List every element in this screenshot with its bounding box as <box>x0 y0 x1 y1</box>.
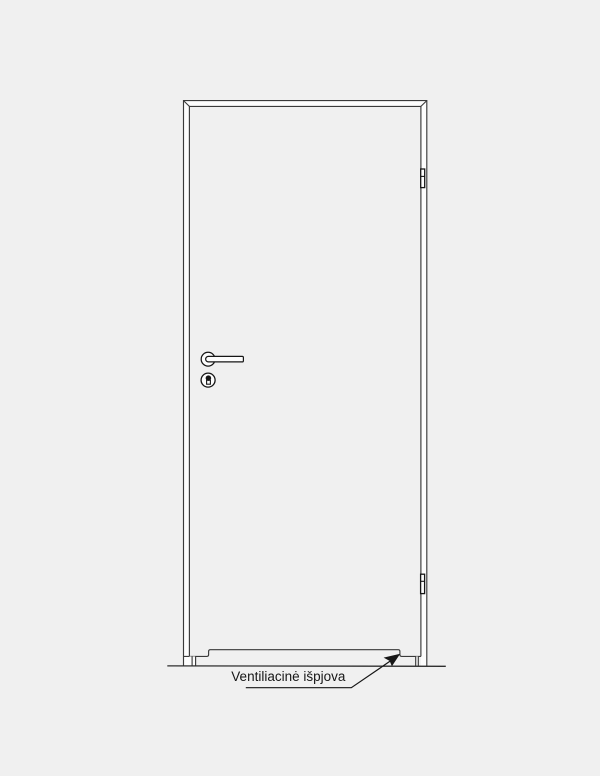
svg-text:Ventiliacinė išpjova: Ventiliacinė išpjova <box>231 669 346 684</box>
